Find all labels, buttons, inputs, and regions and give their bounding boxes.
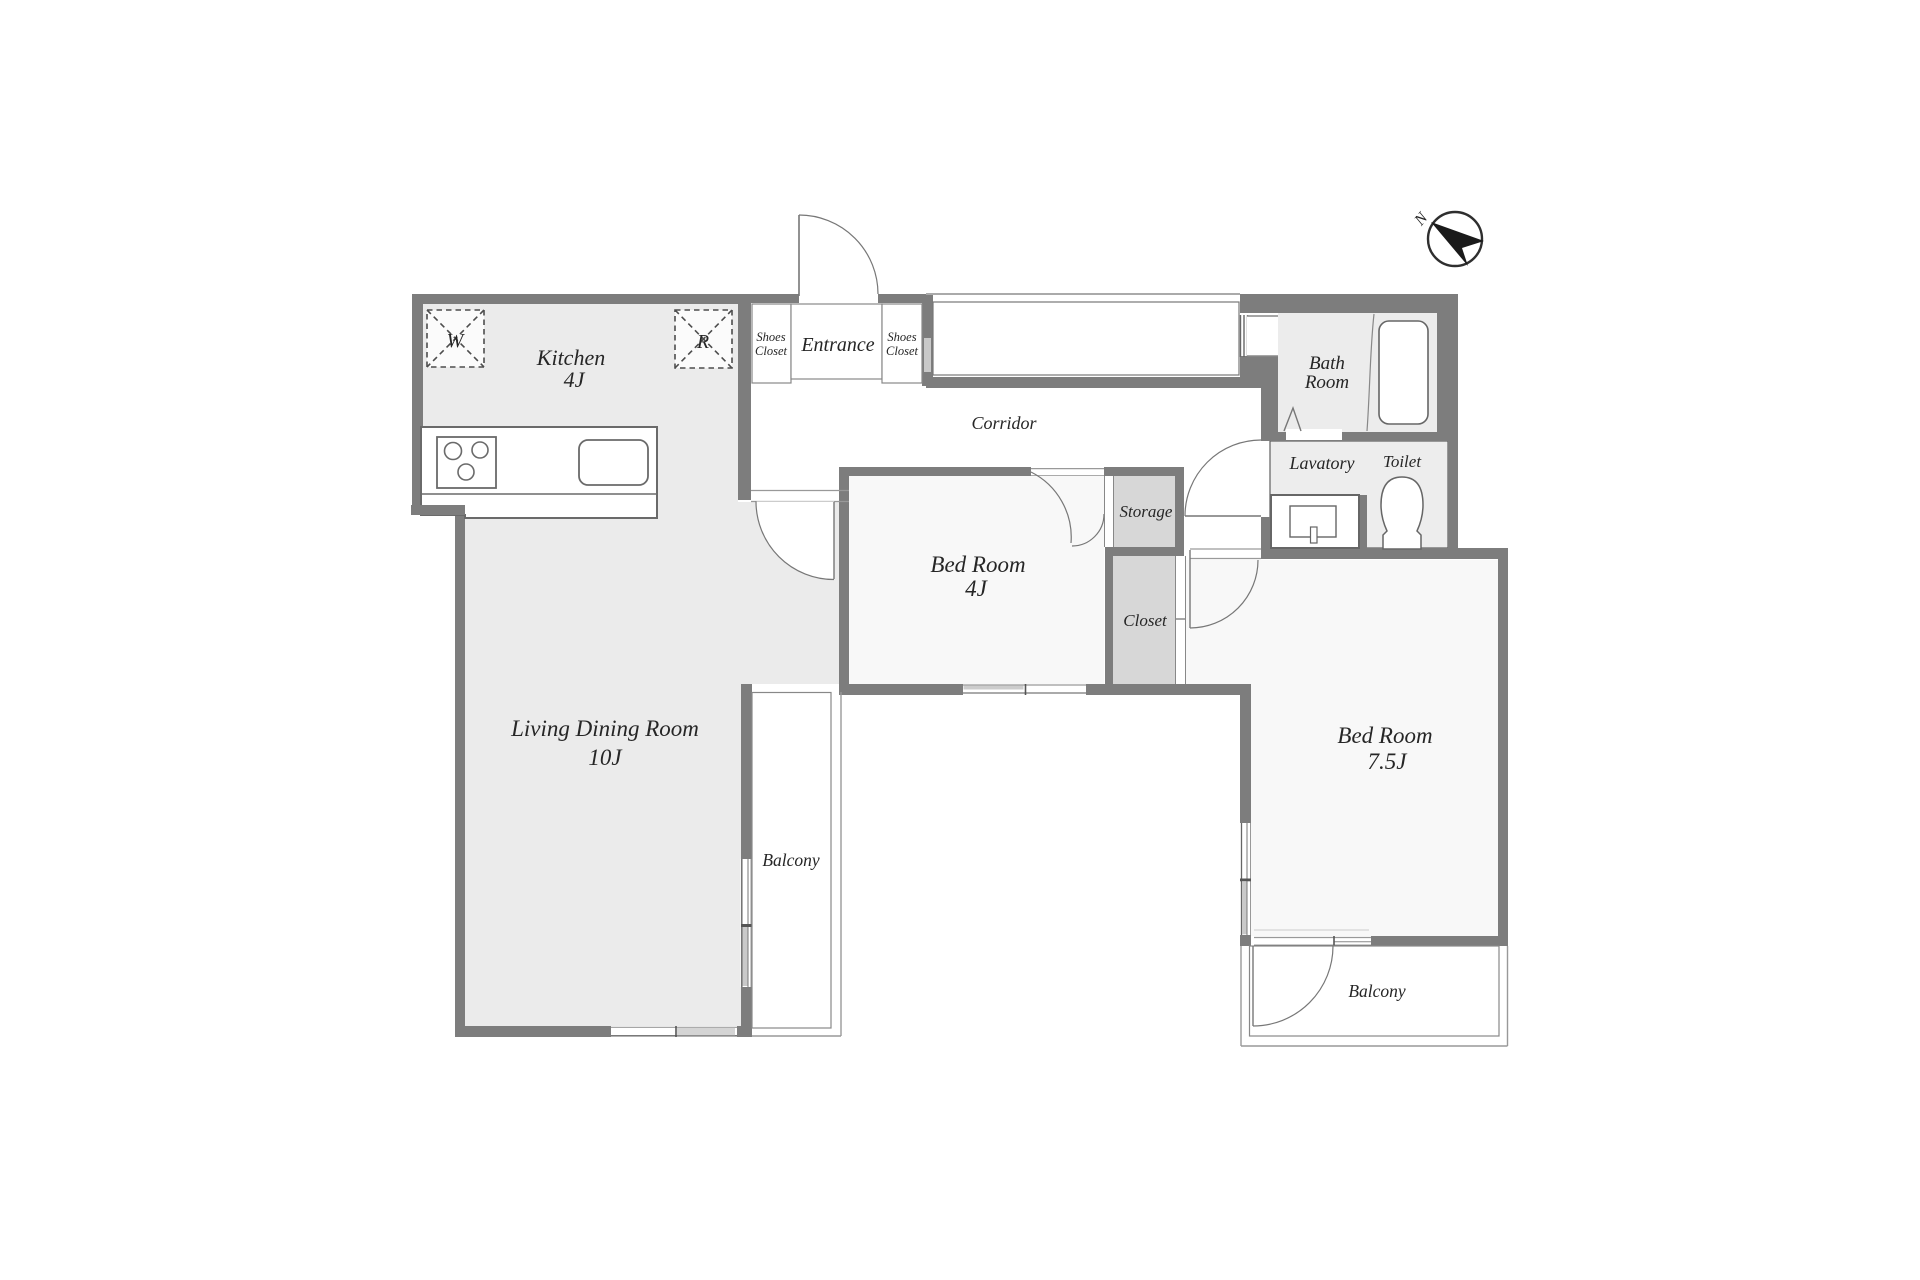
svg-text:Corridor: Corridor <box>971 413 1037 433</box>
svg-text:Closet: Closet <box>755 344 787 358</box>
svg-text:Shoes: Shoes <box>756 330 785 344</box>
svg-text:Closet: Closet <box>886 344 918 358</box>
svg-text:4J: 4J <box>564 367 586 392</box>
svg-text:Living Dining Room: Living Dining Room <box>510 716 699 741</box>
svg-text:Lavatory: Lavatory <box>1289 453 1355 473</box>
svg-text:R: R <box>696 331 709 353</box>
svg-text:Bed Room: Bed Room <box>1337 723 1432 748</box>
svg-text:7.5J: 7.5J <box>1368 749 1409 774</box>
svg-text:Bath: Bath <box>1309 353 1345 374</box>
svg-text:Toilet: Toilet <box>1383 452 1422 471</box>
svg-text:Balcony: Balcony <box>1348 981 1406 1001</box>
svg-text:W: W <box>447 330 466 352</box>
svg-text:Entrance: Entrance <box>800 334 874 356</box>
svg-text:Balcony: Balcony <box>762 850 820 870</box>
svg-text:Storage: Storage <box>1120 502 1173 521</box>
svg-text:Bed Room: Bed Room <box>930 552 1025 577</box>
svg-text:4J: 4J <box>965 576 989 601</box>
svg-text:Shoes: Shoes <box>887 330 916 344</box>
svg-text:Closet: Closet <box>1123 611 1168 630</box>
svg-text:10J: 10J <box>588 745 623 770</box>
svg-text:Room: Room <box>1304 372 1349 393</box>
